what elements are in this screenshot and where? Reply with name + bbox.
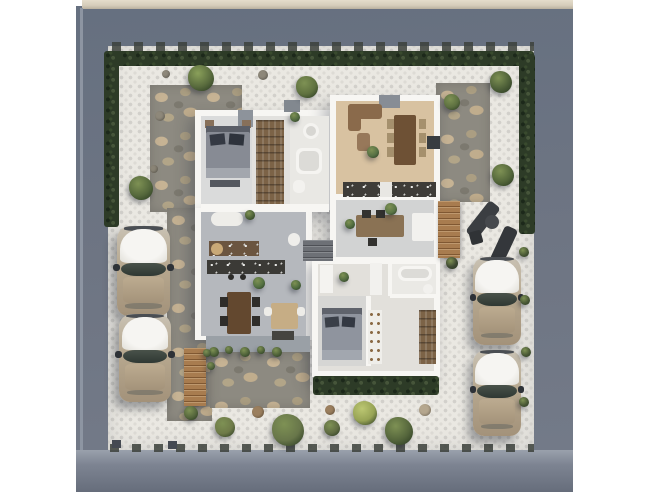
drain-cover-2 (168, 441, 177, 449)
flagstone-patio-bottom (210, 350, 310, 408)
wall-shrub-3 (521, 347, 531, 357)
sink-right (423, 284, 433, 294)
car-left-1 (117, 226, 170, 316)
car-left-2-glass (123, 350, 167, 363)
dining-chair-l3 (220, 316, 228, 326)
dining-chair-r3 (387, 147, 394, 157)
kitchen-gap-right (380, 182, 392, 197)
stool-1 (228, 274, 234, 280)
terrace-shrub-3 (240, 347, 250, 357)
car-right-2-rear-window (481, 424, 514, 429)
kitchen-plant-2 (291, 280, 301, 290)
toilet-left (293, 180, 305, 193)
office-plant-2 (385, 203, 397, 215)
closet-shelving-left (256, 120, 284, 204)
wall-shrub-4 (519, 397, 529, 407)
tree-patio-right (444, 94, 460, 110)
hedge-right (519, 54, 535, 234)
bush-bottom-1 (215, 417, 235, 437)
car-right-2-hood (475, 353, 518, 386)
planter-by-deck-right (446, 257, 458, 269)
car-right-2-mirror-right (518, 386, 524, 393)
car-right-1-rear-window (481, 333, 514, 338)
bed-left-pillow-2 (229, 133, 245, 145)
car-left-1-hood (120, 229, 168, 263)
tree-top-center (296, 76, 318, 98)
car-right-2-roof-panel (479, 399, 515, 424)
living-plant-right (367, 146, 379, 158)
white-chair-2 (297, 307, 305, 316)
dining-chair-l2 (252, 297, 260, 307)
wall-shrub-1 (519, 247, 529, 257)
pebble-5 (419, 404, 431, 416)
left-wall-highlight (80, 8, 83, 490)
top-curb (82, 0, 573, 9)
sofa-white-left (211, 212, 243, 226)
car-right-2 (473, 350, 521, 436)
white-chair-1 (264, 307, 272, 316)
terrace-shrub-2 (225, 346, 233, 354)
side-table-left (271, 303, 298, 329)
bush-lime (353, 401, 377, 425)
bathtub-right-basin (401, 269, 429, 278)
car-left-2-hood (122, 317, 169, 350)
car-right-1-glass (477, 293, 517, 306)
bed-right-blanket-fold (322, 350, 362, 360)
floor-plan-aerial-render (0, 0, 648, 492)
plant-by-sofa (245, 210, 255, 220)
bathtub-left-basin (299, 151, 319, 171)
stairs-block (303, 240, 333, 261)
car-right-2-glass (477, 385, 517, 398)
wall-left-mid (201, 204, 329, 212)
stool-2 (240, 274, 246, 280)
round-table-left (211, 243, 223, 255)
dining-table-right (394, 115, 416, 165)
car-left-1-glass (121, 263, 166, 277)
hedge-top (108, 51, 534, 66)
wardrobe-right-bedroom (320, 265, 333, 293)
bed-left-bench (210, 180, 240, 187)
tree-right-mid (492, 164, 514, 186)
dining-chair-l1 (220, 297, 228, 307)
pebble-7 (325, 405, 335, 415)
drain-cover-1 (112, 440, 121, 448)
bed-right-pillow-2 (342, 317, 356, 328)
bed-left-pillow-1 (209, 133, 225, 146)
bed-right-pillow-1 (325, 316, 340, 327)
bed-left-blanket-fold (206, 168, 250, 178)
dining-chair-r4 (419, 119, 426, 129)
tree-top-right (490, 71, 512, 93)
deck-plant-2 (207, 362, 215, 370)
car-left-1-rear-window (125, 303, 161, 308)
car-right-1 (473, 257, 521, 345)
wall-shrub-2 (520, 295, 530, 305)
bush-by-deck-left (184, 406, 198, 420)
tree-top-left (188, 65, 214, 91)
fridge-right (370, 263, 382, 295)
wall-right-bath-div (390, 294, 436, 298)
pebble-3 (155, 111, 165, 121)
pebble-1 (258, 70, 268, 80)
dining-chair-r6 (419, 147, 426, 157)
kitchen-plant-1 (253, 277, 265, 289)
deck-left (184, 348, 206, 406)
patio-table (485, 215, 499, 229)
desk-chair-3 (368, 238, 377, 246)
hedge-left (104, 51, 119, 227)
car-left-2-rear-window (127, 390, 162, 395)
hall-shelving-right (368, 310, 382, 364)
coping-ticks-top (112, 42, 534, 51)
car-left-2-mirror-right (168, 351, 175, 358)
deck-right (438, 201, 460, 258)
terrace-shrub-5 (272, 347, 282, 357)
closet-shelving-right (419, 310, 436, 364)
kitchen-counter-lower-left (207, 260, 285, 274)
dark-mat-left (272, 331, 294, 340)
media-block-right (427, 136, 440, 149)
tree-mid-left (129, 176, 153, 200)
pebble-6 (252, 406, 264, 418)
pebble-2 (162, 70, 170, 78)
cabinet-white-right (412, 213, 434, 241)
desk-chair-2 (376, 210, 385, 218)
dining-chair-r5 (419, 133, 426, 143)
dining-table-left (227, 292, 251, 334)
bottom-wall-band (76, 450, 573, 492)
car-right-1-hood (475, 260, 518, 293)
dining-chair-r2 (387, 133, 394, 143)
car-left-2-roof-panel (125, 364, 165, 390)
office-plant-1 (345, 219, 355, 229)
dining-chair-r1 (387, 119, 394, 129)
car-right-1-mirror-left (470, 294, 476, 301)
car-left-1-mirror-left (113, 264, 120, 271)
porch-pad-left (284, 100, 300, 112)
car-right-1-roof-panel (479, 307, 515, 333)
entry-pad-right (379, 95, 400, 108)
car-left-1-mirror-right (167, 264, 174, 271)
desk-chair-1 (362, 210, 371, 218)
car-left-2 (119, 314, 171, 402)
bush-bottom-2 (272, 414, 304, 446)
hall-plant-right (339, 272, 349, 282)
armchair-white-left (288, 233, 300, 246)
deck-plant-1 (203, 349, 211, 357)
sofa-right-corner (348, 104, 361, 131)
hedge-below-right-unit (313, 376, 439, 395)
sink-left-basin (306, 126, 316, 136)
dining-chair-l4 (252, 316, 260, 326)
pebble-4 (150, 165, 158, 173)
terrace-shrub-4 (257, 346, 265, 354)
bush-bottom-4 (385, 417, 413, 445)
bath-plant-left (290, 112, 300, 122)
car-left-1-roof-panel (123, 277, 163, 303)
wall-right-bath-vert (388, 263, 392, 296)
car-left-2-mirror-left (115, 351, 122, 358)
car-right-2-mirror-left (470, 386, 476, 393)
bush-bottom-3 (324, 420, 340, 436)
desk-right (356, 215, 404, 237)
